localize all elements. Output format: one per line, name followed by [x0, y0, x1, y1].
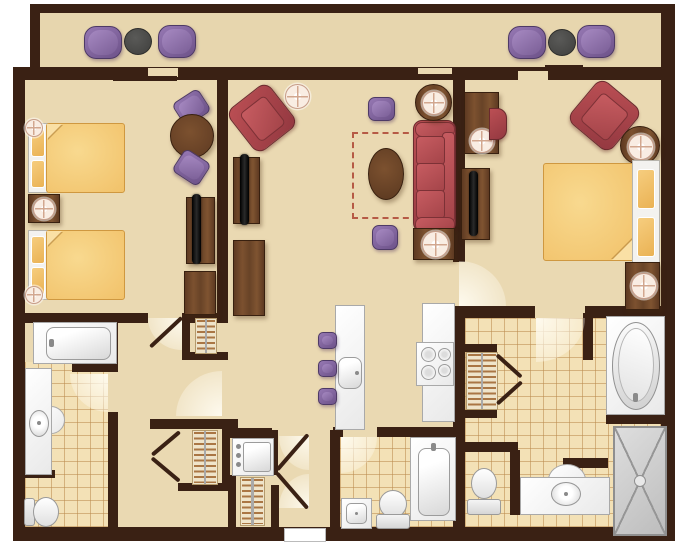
balcony-table-1 [124, 28, 152, 55]
pillow [31, 236, 45, 264]
bathtub-1-surround [33, 322, 117, 364]
drain [355, 512, 358, 515]
patio-door-gap-3 [518, 71, 548, 80]
floor-plan [0, 0, 677, 547]
coffee-table [368, 148, 404, 200]
wall-master-closet-bottom [455, 410, 497, 418]
table-lamp-icon [422, 231, 449, 258]
dresser-bedroom1 [184, 271, 216, 315]
range-stove [416, 342, 454, 386]
mattress [46, 123, 125, 193]
nightstand-bedroom1 [28, 194, 60, 223]
wall-kitchen-south-right [377, 427, 453, 437]
ottoman-2 [372, 225, 398, 250]
tv-living [240, 154, 249, 225]
bottom-exterior-wall [13, 527, 674, 541]
end-table-round-living [415, 84, 452, 121]
bathtub-2-surround [410, 437, 456, 521]
stacked-washer-dryer [232, 438, 274, 476]
floor-lamp-living [285, 84, 310, 109]
wall-master-closet-top [455, 344, 497, 352]
ottoman-1 [368, 97, 395, 121]
armchair-seat [239, 95, 286, 143]
drain [37, 421, 41, 425]
bathtub-2 [418, 448, 450, 516]
sofa [413, 120, 456, 232]
balcony-top-wall [30, 4, 674, 13]
pillow [637, 217, 655, 257]
vanity-master-sink [551, 482, 581, 506]
toilet-bowl [33, 497, 59, 527]
balcony-lounge-chair-4 [577, 25, 615, 58]
desk-chair-master [489, 108, 507, 140]
table-lamp-icon [422, 91, 446, 115]
sofa-cushion [416, 190, 445, 219]
patio-door-panel-2 [388, 74, 452, 79]
console-dresser-living [233, 240, 265, 316]
sink-2-basin [346, 503, 367, 524]
wall-louver2-left [228, 475, 236, 527]
burner [421, 347, 436, 362]
corner-lamp-bedroom1-bottom [25, 286, 43, 304]
end-table-living [413, 228, 455, 260]
vanity-1-sink [29, 410, 49, 437]
washer-door [243, 442, 271, 472]
burner [438, 364, 451, 377]
faucet [355, 371, 359, 375]
washer-knob [236, 462, 241, 467]
faucet [431, 443, 436, 451]
wall-toilet-nook-right [510, 450, 520, 515]
tv-master [469, 171, 478, 236]
wall-entry-vert-lower [271, 485, 279, 527]
burner [421, 365, 436, 380]
sofa-cushion [416, 136, 445, 165]
bar-stool-3 [318, 388, 337, 405]
headboard [632, 160, 660, 264]
kitchen-sink [338, 357, 362, 389]
toilet-tank [376, 514, 410, 529]
table-lamp-icon [631, 273, 657, 299]
toilet-master [467, 468, 499, 514]
patio-door-panel-3 [545, 65, 583, 70]
pillow [31, 160, 45, 188]
balcony-lounge-chair-2 [158, 25, 196, 58]
toilet-1 [24, 494, 58, 528]
nightstand-master [625, 262, 660, 310]
table-lamp-icon [33, 198, 55, 220]
vanity-1 [25, 368, 89, 473]
faucet [49, 339, 54, 347]
toilet-bowl [471, 468, 497, 499]
corner-lamp-bedroom1-top [25, 119, 43, 137]
bar-stool-1 [318, 332, 337, 349]
sink-2-cabinet [341, 498, 372, 529]
soaking-tub-surround [606, 316, 665, 415]
drain [564, 492, 568, 496]
burner [438, 348, 451, 361]
tv-bedroom1 [192, 194, 201, 264]
closet-B-louver-doors [192, 430, 218, 485]
wall-master-south-left [453, 306, 535, 318]
table-lamp-icon [628, 134, 654, 160]
wall-bath2-entry [330, 430, 340, 527]
soaking-tub [612, 322, 660, 410]
wall-bedroom1-living [217, 80, 228, 316]
sheet-fold [612, 238, 634, 260]
soaking-tub-basin [618, 328, 654, 402]
wall-hall-entry [150, 419, 238, 429]
queen-bed-2 [28, 230, 123, 298]
master-closet-louver-doors [466, 352, 498, 410]
balcony-lounge-chair-1 [84, 26, 122, 59]
king-bed [543, 160, 658, 262]
sheet-fold [47, 231, 62, 246]
balcony-left-wall [30, 4, 40, 68]
toilet-2 [376, 490, 408, 528]
pillow [637, 169, 655, 209]
washer-knob [236, 453, 241, 458]
washer-knob [236, 444, 241, 449]
sofa-cushion [416, 163, 445, 192]
mattress [543, 163, 635, 261]
faucet [633, 393, 638, 402]
wall-entry-top [228, 428, 272, 438]
balcony-lounge-chair-3 [508, 26, 546, 59]
vanity-master [520, 464, 608, 513]
entry-louver-closet [240, 477, 265, 526]
patio-door-panel-1 [113, 76, 177, 81]
bathtub-1 [46, 327, 111, 360]
entry-door-threshold [284, 528, 326, 542]
walk-in-shower [613, 426, 667, 536]
mattress [46, 230, 125, 300]
closet-A-louver-doors [195, 318, 217, 354]
balcony-table-2 [548, 29, 576, 56]
queen-bed-1 [28, 123, 123, 191]
toilet-tank [467, 499, 501, 515]
sheet-fold [47, 124, 62, 139]
bar-stool-2 [318, 360, 337, 377]
wall-bathroom1-east [108, 412, 118, 527]
